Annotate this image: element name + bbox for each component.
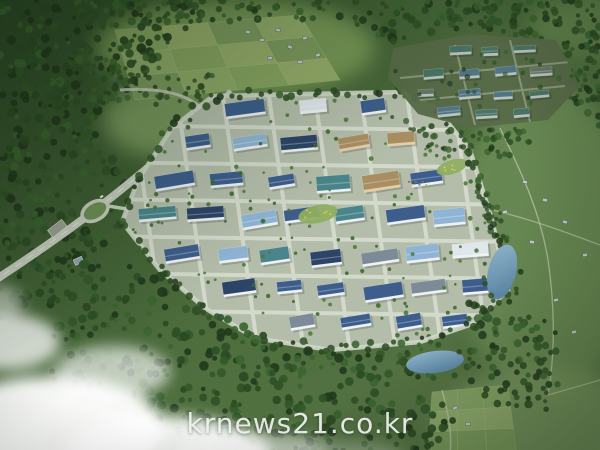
vignette [0, 0, 600, 450]
watermark: krnews21.co.kr [187, 407, 414, 440]
rendered-landscape [0, 0, 600, 450]
aerial-rendering: krnews21.co.kr [0, 0, 600, 450]
